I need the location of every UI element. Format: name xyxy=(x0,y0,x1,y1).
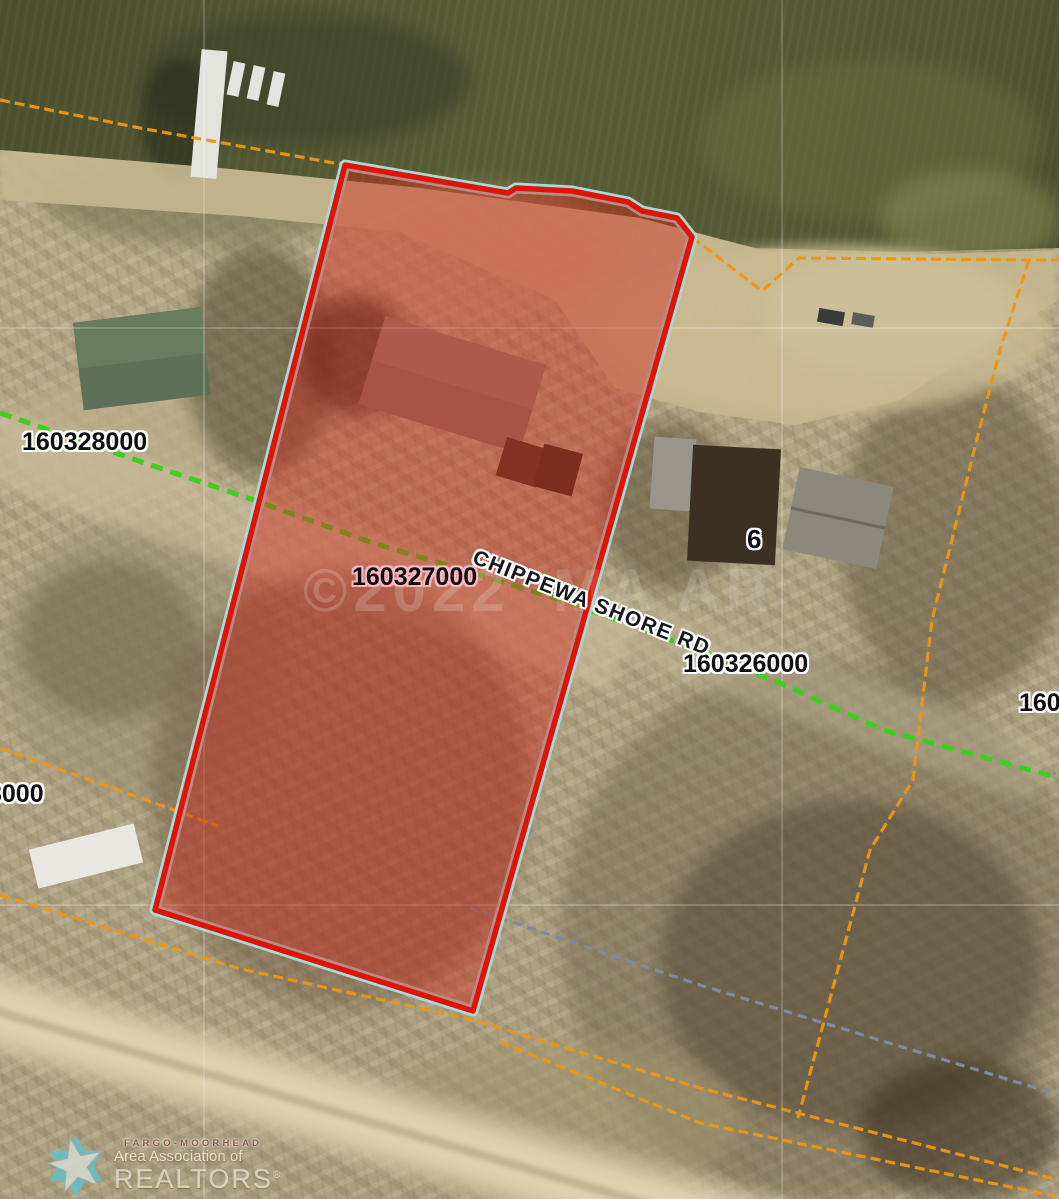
vehicle xyxy=(817,308,845,326)
vehicle xyxy=(851,312,875,328)
building-dark-cabin xyxy=(687,445,781,565)
parcel-label-160327000-selected: 160327000 xyxy=(352,563,477,592)
parcel-label-160328000: 160328000 xyxy=(22,428,147,457)
building-white-trailer xyxy=(29,824,143,889)
logo-line2: Area Association of xyxy=(114,1149,282,1165)
logo-realtors-text: REALTORS xyxy=(114,1164,273,1194)
parcel-label-160-partial: 160 xyxy=(1019,689,1059,718)
realtor-association-logo: FARGO-MOORHEAD Area Association of REALT… xyxy=(44,1134,282,1198)
lot-number-label: 6 xyxy=(747,524,761,555)
logo-line3: REALTORS® xyxy=(114,1165,282,1193)
building-gray-gable xyxy=(782,467,893,569)
boat-dock xyxy=(190,49,285,179)
building-green-cabin xyxy=(73,307,211,410)
map-viewport[interactable]: ©2022MA AR 160328000 160327000 160326000… xyxy=(0,0,1059,1199)
snowflake-icon xyxy=(44,1134,108,1198)
building-gray-shed xyxy=(650,437,697,512)
registered-mark: ® xyxy=(273,1170,282,1181)
parcel-label-8000-partial: 8000 xyxy=(0,780,44,809)
